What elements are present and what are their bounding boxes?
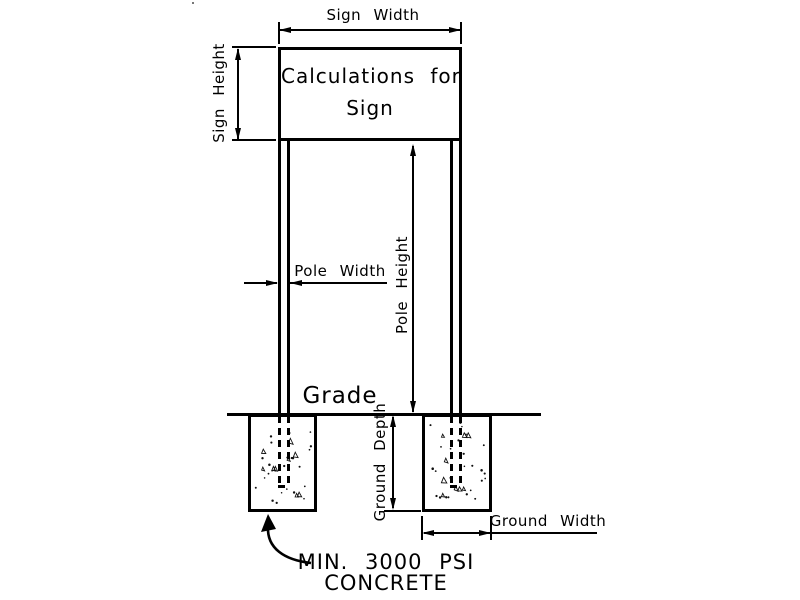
ground-depth-arrow-up-icon bbox=[390, 415, 396, 427]
ground-depth-extension-bottom bbox=[384, 510, 421, 512]
pole-height-label: Pole Height bbox=[393, 215, 411, 355]
ground-width-leader-line bbox=[491, 532, 597, 534]
right-pole-hidden-right-edge bbox=[459, 416, 462, 486]
ground-depth-arrow-down-icon bbox=[390, 498, 396, 510]
pole-height-dimension-line bbox=[412, 146, 414, 412]
sign-height-arrow-up-icon bbox=[235, 48, 241, 60]
right-concrete-footing bbox=[422, 414, 492, 512]
scan-speck bbox=[192, 2, 194, 4]
ground-width-arrow-left-icon bbox=[422, 530, 434, 536]
sign-width-extension-right bbox=[460, 22, 462, 44]
ground-width-label: Ground Width bbox=[478, 512, 618, 530]
sign-height-label: Sign Height bbox=[210, 23, 228, 163]
sign-panel: Calculations for Sign bbox=[278, 47, 462, 141]
sign-width-arrow-right-icon bbox=[449, 27, 461, 33]
right-pole-left-edge bbox=[450, 141, 453, 414]
pole-height-arrow-up-icon bbox=[410, 144, 416, 156]
sign-height-dimension-line bbox=[237, 49, 239, 139]
right-pole-hidden-left-edge bbox=[450, 416, 453, 486]
sign-width-dimension-line bbox=[280, 29, 460, 31]
left-concrete-stipple-pattern bbox=[251, 417, 314, 509]
concrete-note-line2: CONCRETE bbox=[286, 571, 486, 595]
right-pole-right-edge bbox=[459, 141, 462, 414]
pole-width-label: Pole Width bbox=[270, 262, 410, 280]
right-pole-hidden-bottom bbox=[450, 485, 462, 488]
left-pole-hidden-right-edge bbox=[287, 416, 290, 486]
ground-depth-dimension-line bbox=[392, 417, 394, 508]
ground-width-extension-left bbox=[421, 516, 423, 540]
ground-width-extension-right bbox=[490, 516, 492, 540]
pole-width-leader-line bbox=[290, 282, 387, 284]
sign-height-arrow-down-icon bbox=[235, 128, 241, 140]
sign-width-extension-left bbox=[278, 22, 280, 44]
sign-calculation-diagram: Sign Width Calculations for Sign Sign He… bbox=[0, 0, 800, 600]
left-concrete-footing bbox=[248, 414, 317, 512]
sign-text-line2: Sign bbox=[281, 96, 459, 120]
sign-text-line1: Calculations for bbox=[281, 64, 459, 88]
sign-width-label: Sign Width bbox=[293, 6, 453, 24]
left-pole-hidden-bottom bbox=[278, 485, 290, 488]
right-concrete-stipple-pattern bbox=[425, 417, 489, 509]
left-pole-hidden-left-edge bbox=[278, 416, 281, 486]
sign-width-arrow-left-icon bbox=[279, 27, 291, 33]
pole-height-arrow-down-icon bbox=[410, 401, 416, 413]
ground-width-arrow-right-icon bbox=[479, 530, 491, 536]
pole-width-arrow-right-icon bbox=[266, 280, 278, 286]
concrete-leader-arrow-icon bbox=[261, 514, 276, 532]
